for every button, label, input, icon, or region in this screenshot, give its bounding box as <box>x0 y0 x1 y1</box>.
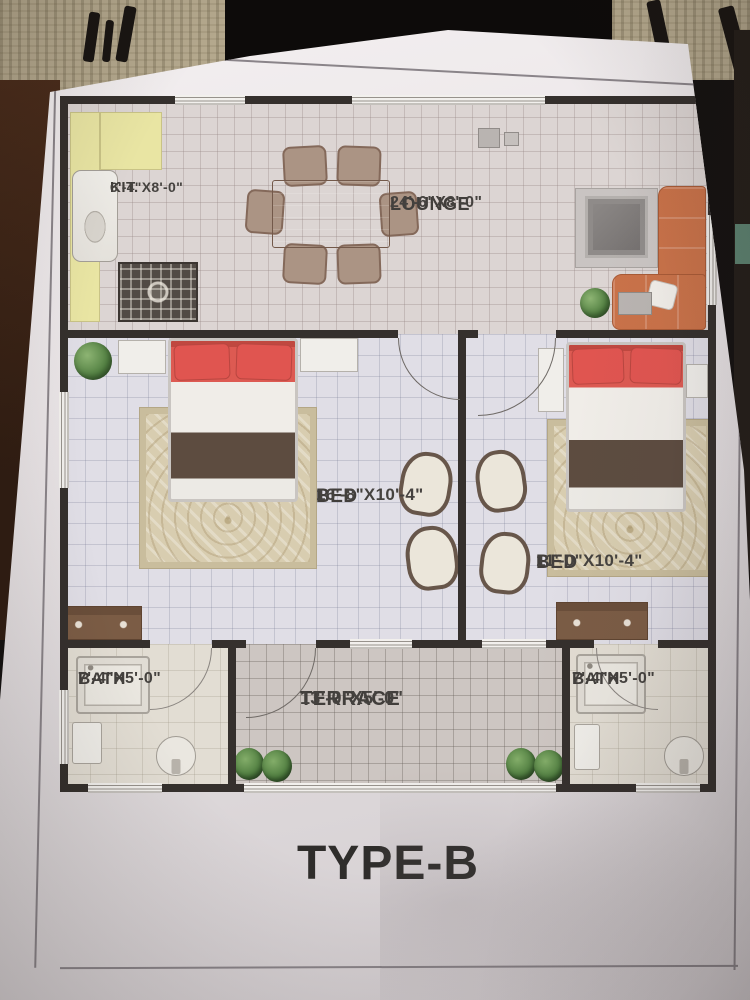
nightstand-icon <box>686 364 708 398</box>
bath-sink-icon <box>72 722 102 764</box>
kitchen-counter-top <box>100 112 162 170</box>
paper-sheet: KIT. 6'-4"X8'-0" LOUNGE 24'-6"X8'-0" BED… <box>0 0 750 1000</box>
pillow-icon <box>629 347 682 385</box>
plan-title: TYPE-B <box>238 836 538 891</box>
wall-lower-2 <box>212 640 246 648</box>
window-right <box>707 215 717 305</box>
bedroom-left-plant-icon <box>74 342 112 380</box>
terrace-dims: 13'-0"X5'-0" <box>300 686 403 710</box>
coffee-table-icon <box>618 292 652 315</box>
terrace-bush-icon <box>534 750 564 782</box>
wall-lower-1 <box>60 640 150 648</box>
terrace-wall-left <box>228 648 236 784</box>
wall-right <box>708 96 716 792</box>
stove-icon <box>118 262 198 322</box>
nightstand-icon <box>118 340 166 374</box>
toilet-icon <box>664 736 704 776</box>
bedroom-right-dims: 11'-0"X10'-4" <box>536 550 643 573</box>
window-bath-left-bottom <box>88 783 162 793</box>
dining-table-icon <box>272 180 390 248</box>
dresser-left-icon <box>60 606 142 640</box>
lounge-plant-icon <box>580 288 610 318</box>
green-object <box>735 224 750 264</box>
window-bedroom-left-bottom <box>350 639 412 649</box>
window-left-bath <box>59 690 69 764</box>
dining-chair-icon <box>282 243 328 285</box>
pillow-icon <box>235 343 292 381</box>
terrace-bush-icon <box>506 748 536 780</box>
bath-right-dims: 7'-4"X5'-0" <box>572 668 655 690</box>
window-left-bedroom <box>59 392 69 488</box>
nightstand-icon <box>300 338 358 372</box>
vent-icon <box>478 128 500 148</box>
kitchen-dims: 6'-4"X8'-0" <box>110 178 183 197</box>
photo-of-floor-plan: KIT. 6'-4"X8'-0" LOUNGE 24'-6"X8'-0" BED… <box>0 0 750 1000</box>
bath-sink-icon <box>574 724 600 770</box>
pillow-icon <box>571 347 624 385</box>
wall-mid-left <box>60 330 398 338</box>
bath-left-dims: 7'-4"X5'-0" <box>78 668 161 690</box>
window-top-left <box>175 95 245 105</box>
wall-mid-right <box>556 330 716 338</box>
window-terrace-railing <box>244 783 556 793</box>
window-bath-right-bottom <box>636 783 700 793</box>
terrace-bush-icon <box>262 750 292 782</box>
window-bedroom-right-bottom <box>482 639 546 649</box>
dining-chair-icon <box>336 243 381 285</box>
terrace-wall-right <box>562 648 570 784</box>
vent-icon <box>504 132 519 146</box>
window-top-center <box>352 95 545 105</box>
dresser-right-icon <box>556 602 648 640</box>
tv-screen <box>593 204 640 250</box>
terrace-bush-icon <box>234 748 264 780</box>
pillow-icon <box>173 343 230 381</box>
wall-lower-5 <box>658 640 716 648</box>
lounge-dims: 24'-6"X8'-0" <box>390 192 482 214</box>
toilet-icon <box>156 736 196 776</box>
bedroom-left-dims: 16'-8"X10'-4" <box>316 484 424 507</box>
